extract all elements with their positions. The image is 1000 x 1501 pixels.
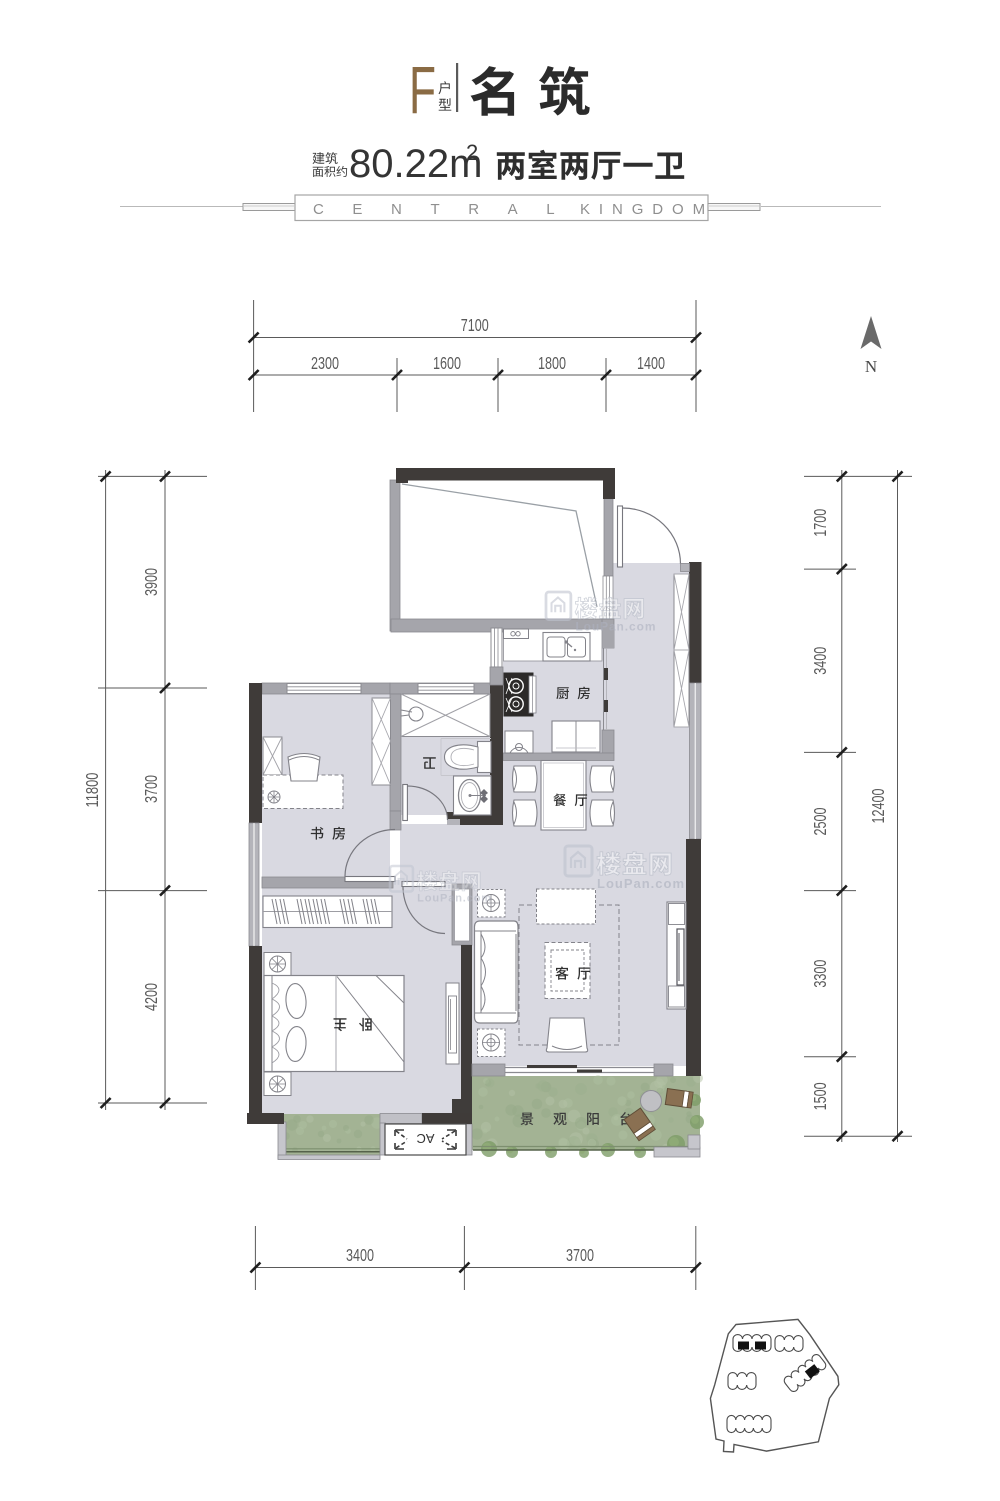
svg-text:3900: 3900 [141, 568, 161, 596]
svg-text:1700: 1700 [810, 509, 830, 537]
svg-text:LouPan.com: LouPan.com [575, 620, 656, 634]
svg-text:11800: 11800 [82, 772, 102, 807]
svg-text:CENTRAL: CENTRAL [313, 201, 583, 218]
svg-text:3700: 3700 [566, 1245, 594, 1265]
svg-text:LouPan.com: LouPan.com [597, 876, 685, 891]
svg-text:3700: 3700 [141, 775, 161, 803]
svg-text:3300: 3300 [810, 959, 830, 987]
svg-text:LouPan.com: LouPan.com [417, 893, 492, 905]
svg-text:KINGDOM: KINGDOM [580, 201, 714, 218]
svg-text:80.22m: 80.22m [349, 142, 482, 186]
svg-text:7100: 7100 [461, 315, 489, 335]
svg-text:2: 2 [466, 140, 478, 165]
svg-text:3400: 3400 [346, 1245, 374, 1265]
svg-text:F: F [409, 54, 436, 128]
svg-text:1400: 1400 [637, 353, 665, 373]
svg-text:AC: AC [416, 1131, 434, 1146]
svg-text:2300: 2300 [311, 353, 339, 373]
svg-text:1800: 1800 [538, 353, 566, 373]
svg-text:2500: 2500 [810, 807, 830, 835]
svg-text:3400: 3400 [810, 647, 830, 675]
svg-text:1500: 1500 [810, 1082, 830, 1110]
svg-text:12400: 12400 [868, 788, 888, 823]
svg-text:1600: 1600 [433, 353, 461, 373]
svg-text:N: N [865, 357, 877, 376]
svg-text:4200: 4200 [141, 983, 161, 1011]
